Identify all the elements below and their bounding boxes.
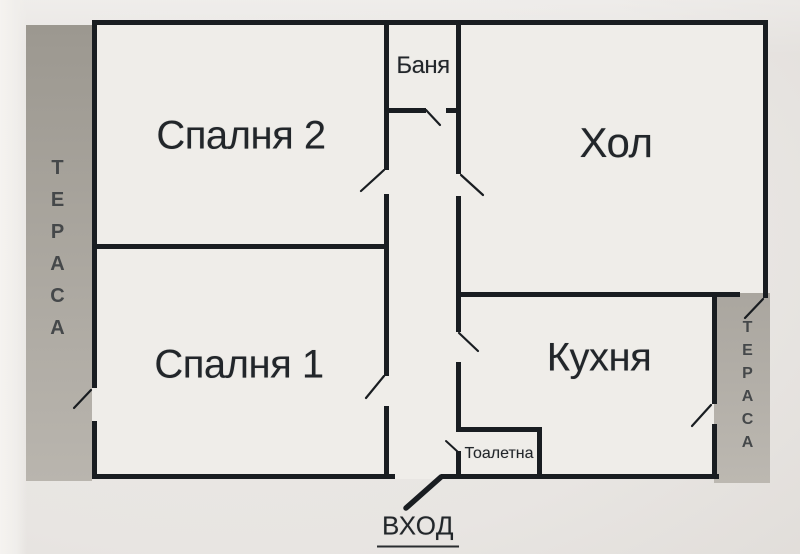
wall-between-bedrooms: [92, 244, 389, 249]
wall-outer-right: [763, 20, 768, 298]
entrance-label: ВХОД: [377, 511, 459, 548]
wall-toilet-left-upper: [456, 362, 461, 432]
room-label-bedroom2: Спалня 2: [156, 114, 325, 159]
floor-plan-drawing: [0, 0, 800, 554]
wall-bath-left: [384, 20, 389, 170]
wall-bath-bottom-left: [384, 108, 426, 113]
terrace-label-right: ТЕРАСА: [738, 319, 756, 457]
wall-outer-bottom-left: [92, 474, 395, 479]
entrance-door-leaf: [406, 477, 441, 508]
room-label-bedroom1: Спалня 1: [154, 343, 323, 388]
wall-kitchen-right-lower: [712, 424, 717, 479]
apartment-floor: [92, 20, 768, 479]
wall-living-bottom: [456, 292, 740, 297]
wall-toilet-top: [456, 427, 542, 432]
wall-outer-top: [92, 20, 768, 25]
room-label-living: Хол: [580, 119, 653, 167]
wall-hall-left-lower: [384, 406, 389, 479]
wall-toilet-left-lower: [456, 451, 461, 479]
wall-bath-bottom-right: [446, 108, 461, 113]
room-label-kitchen: Кухня: [547, 336, 652, 381]
wall-outer-bottom-right: [441, 474, 719, 479]
room-label-bath: Баня: [396, 52, 449, 80]
wall-bath-right: [456, 20, 461, 174]
room-label-toilet: Тоалетна: [464, 445, 533, 463]
wall-kitchen-right-upper: [712, 292, 717, 404]
wall-toilet-right: [537, 427, 542, 479]
wall-corridor-left: [384, 194, 389, 376]
terrace-label-left: ТЕРАСА: [46, 157, 69, 349]
wall-outer-left-upper: [92, 20, 97, 388]
wall-corridor-right: [456, 196, 461, 332]
wall-outer-left-lower: [92, 421, 97, 479]
floor-plan-photo: Спалня 2 Хол Баня Спалня 1 Кухня Тоалетн…: [0, 0, 800, 554]
